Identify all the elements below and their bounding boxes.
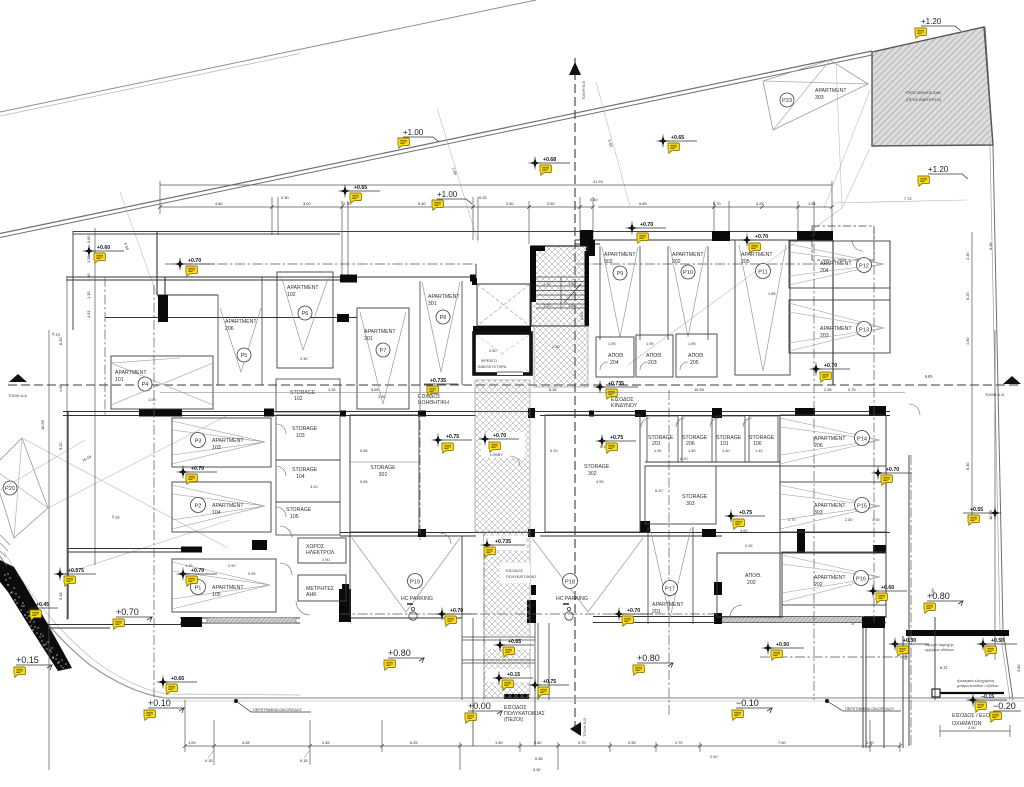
svg-text:5.92: 5.92 [112, 514, 120, 520]
svg-text:104: 104 [212, 510, 221, 516]
svg-text:P1: P1 [195, 585, 202, 591]
svg-text:302: 302 [604, 259, 613, 265]
svg-text:1.06: 1.06 [148, 397, 156, 402]
svg-text:ΥΠΟΣΤΑΘΜΟΣ ΑΗΚ: ΥΠΟΣΤΑΘΜΟΣ ΑΗΚ [905, 90, 941, 95]
svg-text:P11: P11 [758, 269, 768, 275]
svg-text:ΑΠΟΘ.: ΑΠΟΘ. [608, 353, 625, 359]
svg-text:5.35: 5.35 [549, 387, 557, 392]
svg-text:1.50: 1.50 [568, 303, 576, 308]
svg-text:ΟΧΗΜΑΤΩΝ: ΟΧΗΜΑΤΩΝ [952, 721, 982, 727]
svg-text:APARTMENT: APARTMENT [212, 585, 244, 591]
svg-text:−0.10: −0.10 [736, 698, 759, 708]
svg-text:P3: P3 [195, 438, 202, 444]
svg-text:+0.65: +0.65 [171, 676, 184, 682]
svg-text:+1.20: +1.20 [928, 165, 949, 174]
svg-text:205: 205 [741, 259, 750, 265]
svg-text:ΤΟΜΗ A-A: ΤΟΜΗ A-A [8, 393, 27, 398]
svg-text:+0.75: +0.75 [446, 434, 459, 440]
svg-text:5.65: 5.65 [360, 448, 368, 453]
svg-text:STORAGE: STORAGE [292, 426, 318, 432]
svg-text:303: 303 [815, 95, 824, 101]
svg-text:301: 301 [379, 472, 388, 478]
svg-text:105: 105 [212, 592, 221, 598]
svg-text:1.95: 1.95 [688, 341, 696, 346]
svg-text:+0.735: +0.735 [430, 378, 446, 384]
svg-text:7.00: 7.00 [778, 740, 786, 745]
svg-text:ΤΟΜΗ B-B: ΤΟΜΗ B-B [582, 718, 587, 737]
svg-text:3.35: 3.35 [328, 387, 336, 392]
svg-text:ΑΠΟΘ.: ΑΠΟΘ. [646, 353, 663, 359]
svg-text:ΠΟΛΥΚΑΤΟΙΚΙΑΣ: ΠΟΛΥΚΑΤΟΙΚΙΑΣ [506, 574, 537, 579]
svg-text:STORAGE: STORAGE [682, 494, 708, 500]
svg-text:2.90: 2.90 [228, 563, 236, 568]
svg-text:206: 206 [225, 326, 234, 332]
svg-text:203: 203 [820, 333, 829, 339]
svg-text:+0.68: +0.68 [543, 157, 556, 163]
svg-text:104: 104 [296, 474, 305, 480]
svg-text:0.70: 0.70 [713, 201, 721, 206]
svg-text:APARTMENT: APARTMENT [672, 252, 704, 258]
svg-text:3.00: 3.00 [303, 201, 311, 206]
svg-text:201: 201 [652, 609, 661, 615]
svg-text:P12: P12 [859, 263, 869, 269]
svg-text:205: 205 [690, 360, 699, 366]
svg-text:STORAGE: STORAGE [584, 464, 610, 470]
svg-text:APARTMENT: APARTMENT [604, 252, 636, 258]
svg-text:5.65: 5.65 [371, 387, 379, 392]
svg-text:+0.60: +0.60 [97, 245, 110, 251]
svg-text:P20: P20 [5, 486, 15, 492]
svg-text:APARTMENT: APARTMENT [212, 503, 244, 509]
svg-text:+0.70: +0.70 [640, 222, 653, 228]
svg-text:+0.70: +0.70 [886, 467, 899, 473]
svg-text:+0.60: +0.60 [881, 585, 894, 591]
svg-text:APARTMENT: APARTMENT [815, 88, 847, 94]
svg-text:206: 206 [814, 443, 823, 449]
svg-text:1.95: 1.95 [768, 291, 776, 296]
svg-text:204: 204 [820, 268, 829, 274]
svg-text:203: 203 [648, 360, 657, 366]
svg-text:P8: P8 [440, 315, 447, 321]
svg-text:+1.20: +1.20 [921, 17, 942, 26]
svg-text:1.05: 1.05 [872, 517, 880, 522]
svg-text:102: 102 [294, 396, 303, 402]
svg-text:+0.15: +0.15 [16, 655, 39, 665]
svg-text:+0.575: +0.575 [68, 568, 84, 574]
svg-text:+0.735: +0.735 [495, 539, 511, 545]
svg-text:0.35: 0.35 [535, 756, 543, 761]
svg-text:+0.45: +0.45 [36, 602, 49, 608]
svg-text:+1.00: +1.00 [437, 190, 458, 199]
svg-text:1.00: 1.00 [188, 740, 196, 745]
svg-text:+0.65: +0.65 [354, 185, 367, 191]
svg-text:STORAGE: STORAGE [286, 507, 312, 513]
svg-text:+0.70: +0.70 [824, 363, 837, 369]
svg-text:3.60: 3.60 [1016, 664, 1021, 672]
svg-text:3.30: 3.30 [378, 394, 386, 399]
svg-text:+0.80: +0.80 [637, 653, 660, 663]
svg-text:+0.70: +0.70 [755, 234, 768, 240]
svg-text:302: 302 [588, 471, 597, 477]
svg-text:+0.65: +0.65 [671, 135, 684, 141]
svg-text:2.45: 2.45 [322, 740, 330, 745]
svg-text:+1.00: +1.00 [403, 128, 424, 137]
svg-text:P17: P17 [665, 586, 675, 592]
svg-text:2.65: 2.65 [579, 312, 584, 320]
svg-text:APARTMENT: APARTMENT [212, 438, 244, 444]
svg-text:2.70: 2.70 [675, 740, 683, 745]
svg-text:+0.70: +0.70 [493, 433, 506, 439]
svg-text:APARTMENT: APARTMENT [225, 319, 257, 325]
svg-text:202: 202 [814, 582, 823, 588]
svg-text:P2: P2 [195, 503, 202, 509]
svg-text:ΑΠΟΘ.: ΑΠΟΘ. [688, 353, 705, 359]
svg-text:1.50: 1.50 [568, 281, 576, 286]
svg-text:2.50: 2.50 [547, 201, 555, 206]
svg-text:+0.15: +0.15 [507, 672, 520, 678]
svg-text:16.55: 16.55 [40, 420, 45, 430]
svg-text:6.25: 6.25 [965, 292, 970, 300]
svg-text:1.50: 1.50 [688, 448, 696, 453]
svg-text:3.25: 3.25 [756, 201, 764, 206]
svg-text:ΗΛΕΚΤΡΟΛ.: ΗΛΕΚΤΡΟΛ. [306, 550, 336, 556]
svg-text:(ΠΡΟΣ ΑΝΕΓΕΡΣΗ): (ΠΡΟΣ ΑΝΕΓΕΡΣΗ) [906, 97, 942, 102]
svg-text:103: 103 [296, 433, 305, 439]
svg-text:3.30: 3.30 [300, 356, 308, 361]
svg-text:301: 301 [364, 336, 373, 342]
svg-text:ΕΙΣΟΔΟΣ: ΕΙΣΟΔΟΣ [506, 568, 524, 573]
svg-text:+0.75: +0.75 [610, 435, 623, 441]
svg-text:106: 106 [753, 441, 762, 447]
svg-text:1.95: 1.95 [646, 341, 654, 346]
svg-text:5.83: 5.83 [925, 373, 933, 379]
svg-text:ΒΟΗΘΗΤΙΚΗ: ΒΟΗΘΗΤΙΚΗ [418, 400, 449, 406]
svg-text:P4: P4 [142, 382, 149, 388]
svg-text:4.95: 4.95 [596, 479, 604, 484]
svg-text:0.95: 0.95 [248, 571, 256, 576]
svg-text:10.55: 10.55 [694, 387, 704, 392]
svg-text:+0.55: +0.55 [970, 507, 983, 513]
svg-text:2.50: 2.50 [552, 344, 560, 349]
svg-text:31.55: 31.55 [593, 179, 603, 184]
svg-text:+0.735: +0.735 [608, 381, 624, 387]
svg-text:101: 101 [115, 377, 124, 383]
svg-text:P23: P23 [782, 98, 792, 104]
svg-text:+0.75: +0.75 [543, 679, 556, 685]
svg-text:P7: P7 [380, 348, 387, 354]
svg-text:0.75: 0.75 [848, 387, 856, 392]
svg-text:1.90: 1.90 [866, 740, 874, 745]
svg-text:1.20: 1.20 [543, 303, 551, 308]
svg-text:6.12: 6.12 [940, 665, 948, 670]
svg-text:0.50: 0.50 [710, 754, 718, 759]
svg-text:0.50: 0.50 [590, 197, 598, 202]
svg-text:0.15: 0.15 [300, 758, 308, 763]
svg-text:+0.70: +0.70 [116, 607, 139, 617]
svg-text:0.70: 0.70 [788, 517, 796, 522]
svg-text:ΠΕΡΙΓΡΑΜΜΑ ΟΙΚΟΠΕΔΟΥ: ΠΕΡΙΓΡΑΜΜΑ ΟΙΚΟΠΕΔΟΥ [845, 706, 894, 711]
svg-text:4.60: 4.60 [215, 201, 223, 206]
svg-text:P18: P18 [565, 579, 575, 585]
svg-text:+0.75: +0.75 [739, 510, 752, 516]
svg-text:+0.70: +0.70 [191, 466, 204, 472]
svg-text:APARTMENT: APARTMENT [820, 326, 852, 332]
svg-text:P14: P14 [857, 436, 867, 442]
svg-text:ΤΟΜΗ B-B: ΤΟΜΗ B-B [581, 81, 586, 100]
svg-text:101: 101 [720, 441, 729, 447]
svg-text:+0.70: +0.70 [191, 568, 204, 574]
svg-text:102: 102 [287, 292, 296, 298]
svg-text:APARTMENT: APARTMENT [814, 503, 846, 509]
svg-text:P10: P10 [683, 270, 693, 276]
svg-text:APARTMENT: APARTMENT [814, 436, 846, 442]
svg-text:105: 105 [290, 514, 299, 520]
svg-text:1.95: 1.95 [608, 341, 616, 346]
svg-text:6.35: 6.35 [58, 337, 63, 345]
svg-text:1.15: 1.15 [86, 291, 91, 299]
svg-text:201: 201 [652, 441, 661, 447]
svg-text:P13: P13 [859, 327, 869, 333]
svg-text:303: 303 [814, 510, 823, 516]
svg-text:STORAGE: STORAGE [370, 465, 396, 471]
svg-text:2.90: 2.90 [322, 557, 330, 562]
svg-text:7.72: 7.72 [904, 196, 912, 201]
svg-text:ΠΕΡΙΓΡΑΜΜΑ ΟΙΚΟΠΕΔΟΥ: ΠΕΡΙΓΡΑΜΜΑ ΟΙΚΟΠΕΔΟΥ [253, 707, 302, 712]
svg-text:APARTMENT: APARTMENT [814, 575, 846, 581]
svg-text:+0.65: +0.65 [508, 639, 521, 645]
svg-text:1.51: 1.51 [86, 310, 91, 318]
svg-text:0.15: 0.15 [205, 758, 213, 763]
svg-text:+0.70: +0.70 [450, 608, 463, 614]
svg-text:APARTMENT: APARTMENT [652, 602, 684, 608]
svg-text:103: 103 [212, 445, 221, 451]
svg-text:APARTMENT: APARTMENT [820, 261, 852, 267]
svg-text:ΦΡΕΑΤΟ: ΦΡΕΑΤΟ [481, 358, 497, 363]
svg-text:0.60: 0.60 [86, 235, 91, 243]
svg-text:301: 301 [428, 301, 437, 307]
svg-text:STORAGE: STORAGE [292, 467, 318, 473]
svg-text:1.10: 1.10 [543, 281, 551, 286]
svg-text:6.20: 6.20 [655, 488, 663, 493]
svg-text:1.55: 1.55 [654, 448, 662, 453]
svg-text:3.70: 3.70 [578, 740, 586, 745]
svg-text:P5: P5 [241, 353, 248, 359]
svg-text:P15: P15 [857, 503, 867, 509]
svg-text:1.40: 1.40 [722, 448, 730, 453]
svg-text:1.90: 1.90 [495, 740, 503, 745]
svg-text:+0.10: +0.10 [148, 698, 171, 708]
svg-text:3.65: 3.65 [740, 528, 748, 533]
svg-text:2.50: 2.50 [506, 201, 514, 206]
svg-text:5.65: 5.65 [360, 479, 368, 484]
svg-text:2.45: 2.45 [745, 543, 753, 548]
svg-text:5.40: 5.40 [418, 201, 426, 206]
svg-text:APARTMENT: APARTMENT [428, 294, 460, 300]
svg-text:P6: P6 [302, 311, 309, 317]
svg-text:HC PARKING: HC PARKING [556, 596, 588, 602]
svg-text:6.20: 6.20 [680, 456, 688, 461]
svg-text:303: 303 [686, 501, 695, 507]
svg-text:0.30: 0.30 [281, 195, 289, 200]
svg-text:+0.50: +0.50 [991, 638, 1004, 644]
svg-text:ομβρίων υδάτων: ομβρίων υδάτων [925, 647, 954, 652]
svg-text:ΑΗΚ: ΑΗΚ [306, 592, 317, 598]
svg-text:5.10: 5.10 [550, 448, 558, 453]
svg-text:4.90: 4.90 [965, 337, 970, 345]
svg-text:APARTMENT: APARTMENT [364, 329, 396, 335]
svg-text:0.70: 0.70 [343, 201, 351, 206]
svg-text:5.65: 5.65 [639, 201, 647, 206]
svg-text:2.50: 2.50 [489, 348, 497, 353]
svg-text:202: 202 [747, 580, 756, 586]
svg-text:2.80: 2.80 [845, 517, 853, 522]
svg-text:0.25: 0.25 [479, 195, 487, 200]
svg-text:APARTMENT: APARTMENT [741, 252, 773, 258]
svg-text:1.50: 1.50 [86, 255, 91, 263]
svg-text:+0.80: +0.80 [388, 648, 411, 658]
svg-text:302: 302 [672, 259, 681, 265]
svg-text:6.30: 6.30 [965, 462, 970, 470]
svg-text:(ΠΕΖΟΙ): (ΠΕΖΟΙ) [504, 717, 524, 723]
svg-text:P19: P19 [410, 579, 420, 585]
svg-text:1.55: 1.55 [808, 201, 816, 206]
svg-text:LOBBY: LOBBY [490, 452, 503, 457]
svg-text:μπάρα εισόδου / εξόδου: μπάρα εισόδου / εξόδου [957, 683, 999, 688]
svg-text:P16: P16 [856, 576, 866, 582]
svg-text:ΑΠΟΘ.: ΑΠΟΘ. [745, 573, 762, 579]
svg-text:APARTMENT: APARTMENT [115, 370, 147, 376]
svg-text:−0.20: −0.20 [993, 701, 1016, 711]
svg-text:5.18: 5.18 [58, 592, 63, 600]
svg-text:+0.70: +0.70 [627, 608, 640, 614]
svg-text:2.35: 2.35 [824, 387, 832, 392]
svg-text:0.30: 0.30 [533, 767, 541, 772]
svg-text:+0.50: +0.50 [776, 642, 789, 648]
svg-text:+0.80: +0.80 [927, 591, 950, 601]
svg-text:HC PARKING: HC PARKING [401, 596, 433, 602]
svg-text:3.20: 3.20 [310, 484, 318, 489]
svg-text:+0.00: +0.00 [468, 701, 491, 711]
svg-text:0.35: 0.35 [988, 242, 993, 250]
svg-text:206: 206 [686, 441, 695, 447]
svg-text:204: 204 [610, 360, 619, 366]
svg-text:4.00: 4.00 [58, 384, 63, 392]
svg-text:6.25: 6.25 [410, 740, 418, 745]
svg-text:P9: P9 [617, 271, 624, 277]
svg-text:4.28: 4.28 [242, 740, 250, 745]
svg-text:ΑΝΕΛΚΥΣΤΗΡΑ: ΑΝΕΛΚΥΣΤΗΡΑ [478, 364, 507, 369]
svg-text:−0.15: −0.15 [981, 694, 994, 700]
svg-text:+0.70: +0.70 [188, 258, 201, 264]
svg-text:APARTMENT: APARTMENT [287, 285, 319, 291]
svg-text:0.95: 0.95 [628, 740, 636, 745]
svg-text:+0.30: +0.30 [903, 638, 916, 644]
svg-text:16.55: 16.55 [988, 510, 993, 520]
svg-text:2.30: 2.30 [965, 252, 970, 260]
svg-text:1.40: 1.40 [755, 448, 763, 453]
svg-text:9.20: 9.20 [58, 442, 63, 450]
svg-text:ΚΙΝΔΥΝΟΥ: ΚΙΝΔΥΝΟΥ [611, 403, 638, 409]
